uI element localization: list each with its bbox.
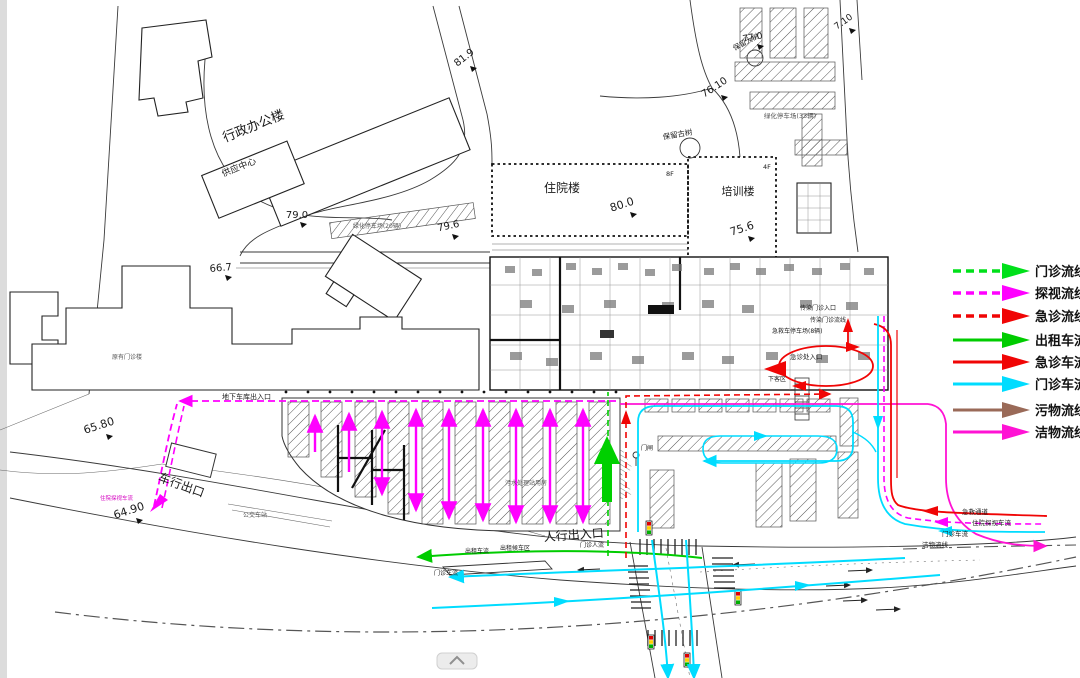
legend-label: 出租车流 [1035,333,1080,349]
label-outpatient-flow-se: 门诊车流 [942,529,969,538]
traffic-light-icon [735,591,741,605]
legend-label: 洁物流线 [1035,425,1080,441]
legend-label: 急诊车流 [1035,355,1080,371]
elevation-west: 66.7 [209,262,232,275]
label-training: 培训楼 [722,184,755,198]
legend-row-waste-line: 污物流线 [953,402,1080,419]
label-dropoff: 下客区 [768,375,786,383]
legend-row-emergency-flow: 急诊车流 [953,354,1080,371]
label-admin-office: 行政办公楼 [221,108,287,146]
label-ambulance-parking: 急救车停车场(8辆) [772,327,823,335]
label-garage-entrance: 地下车库出入口 [222,392,271,401]
label-rescue-channel: 急救通道 [962,507,989,516]
page-edge-strip [0,0,7,678]
column-dots [285,391,618,394]
site-plan-viewport: 81.9 77.0 7.10 保留大树 76.10 保留古树 绿化停车场(33辆… [0,0,1080,678]
label-visit-flow-sw: 住院探视车流 [100,494,134,502]
legend-label: 门诊流线 [1035,264,1080,280]
label-taxi-flow: 出租车流 [465,547,489,555]
building-training-outline [688,157,776,261]
legend-row-taxi-flow: 出租车流 [953,332,1080,349]
legend-label: 门诊车流 [1035,377,1080,393]
elevation-training: 75.6 [728,219,755,239]
tree-circle-old [680,138,700,158]
elevation-admin-west: 79.0 [286,210,308,221]
label-tree-old: 保留古树 [662,126,694,141]
label-training-floors: 4F [763,163,771,171]
legend-label: 污物流线 [1035,403,1080,419]
collapse-button[interactable] [437,653,477,669]
bus-shelter [166,443,216,477]
label-infection-entrance: 传染门诊入口 [800,304,836,312]
label-visit-flow-se: 住院探视车流 [972,518,1012,527]
label-outpatient-people: 门诊人流 [580,541,604,549]
legend-row-visit-line: 探视流线 [953,285,1080,302]
traffic-light-icon [646,521,652,535]
label-gate: 门闸 [641,444,653,452]
legend-row-emergency-line: 急诊流线 [953,308,1080,325]
elevation-sw1: 65.80 [82,415,116,437]
elevation-top-road: 81.9 [452,47,476,69]
building-grid-small [797,183,831,233]
flow-taxi-green [418,551,702,558]
traffic-light-icon [684,653,690,667]
building-northwest [139,20,212,116]
label-emergency-entrance: 急诊处入口 [790,352,823,361]
label-taxi-wait: 出租候车区 [500,544,530,552]
elevation-inpatient: 80.0 [608,195,635,215]
legend-row-clean-line: 洁物流线 [953,424,1080,441]
label-inpatient-floors: 8F [666,170,674,178]
label-clean-flow-se: 洁物流线 [922,540,949,549]
label-outpatient-flow-sw: 门诊车流 [434,569,458,577]
label-infection-flow: 传染门诊流线 [810,316,846,324]
legend-row-outpatient-line: 门诊流线 [953,263,1080,280]
label-sewage: 污水处理站用房 [505,479,547,487]
legend-label: 急诊流线 [1035,309,1080,325]
legend-row-outpatient-flow: 门诊车流 [953,376,1080,393]
building-inpatient-outline [492,164,688,236]
legend: 门诊流线 探视流线 急诊流线 出租车流 急诊车流 门诊车流 [953,263,1080,441]
site-plan-svg: 81.9 77.0 7.10 保留大树 76.10 保留古树 绿化停车场(33辆… [0,0,1080,678]
label-bus-station: 公交车站 [243,511,267,519]
label-inpatient: 住院楼 [544,180,580,195]
legend-label: 探视流线 [1035,286,1080,302]
label-green-parking-20: 绿化停车场(20辆) [353,222,401,230]
label-existing-outpatient: 原有门诊楼 [112,353,142,361]
label-green-parking-33: 绿化停车场(33辆) [764,111,816,120]
elevation-sw2: 64.90 [112,500,146,522]
traffic-light-icon [648,635,654,649]
